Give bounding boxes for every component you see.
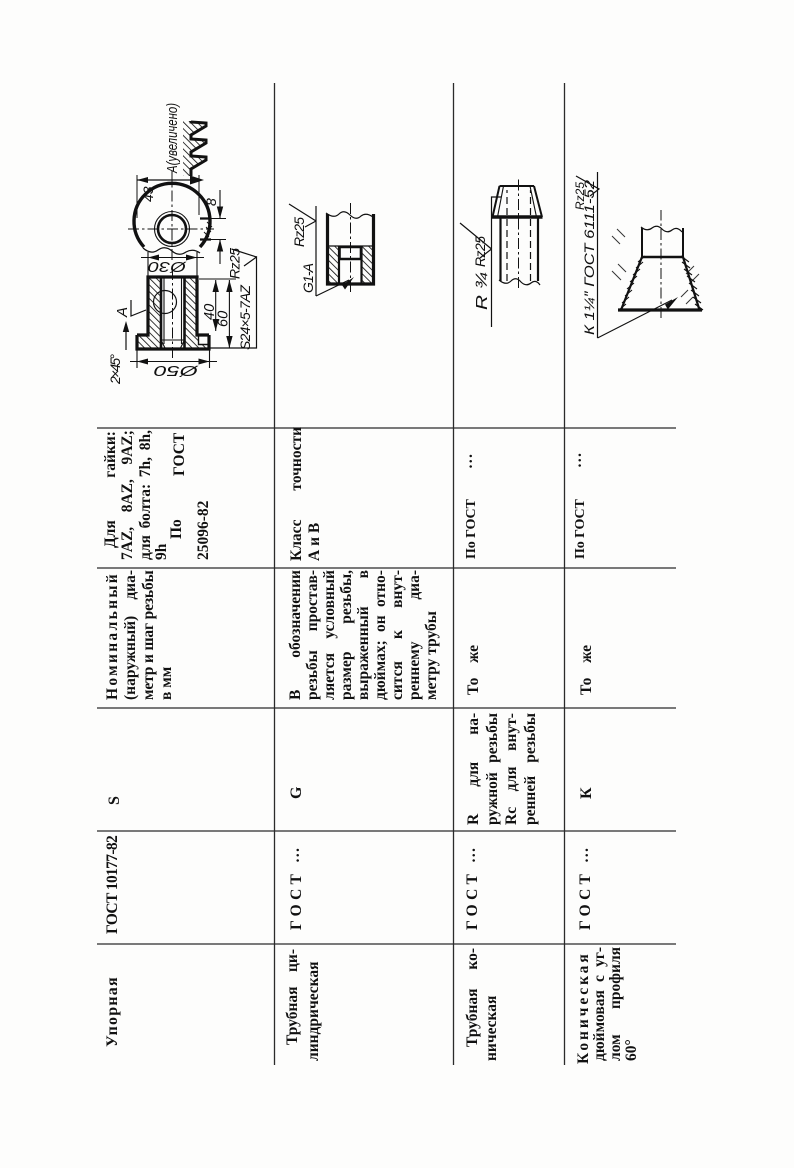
svg-text:8: 8 <box>203 198 219 206</box>
svg-text:ляется условный: ляется условный <box>321 570 338 700</box>
svg-text:размер резьбы,: размер резьбы, <box>338 570 355 700</box>
svg-text:S24×5-7AZ: S24×5-7AZ <box>237 285 253 350</box>
svg-text:для болта: 7h, 8h,: для болта: 7h, 8h, <box>137 430 154 560</box>
svg-text:Класс точности: Класс точности <box>288 427 305 561</box>
svg-text:60°: 60° <box>623 1039 640 1061</box>
svg-text:ренней резьбы: ренней резьбы <box>522 713 539 825</box>
svg-text:Rz25: Rz25 <box>573 182 587 210</box>
svg-text:А: А <box>114 307 131 318</box>
svg-text:В обозначении: В обозначении <box>287 570 304 700</box>
svg-text:Трубная ко-: Трубная ко- <box>464 948 481 1047</box>
svg-text:Трубная ци-: Трубная ци- <box>284 949 301 1045</box>
svg-text:Rc для внут-: Rc для внут- <box>503 713 520 825</box>
svg-text:реннему диа-: реннему диа- <box>406 570 423 700</box>
svg-text:9h: 9h <box>153 543 170 560</box>
svg-text:метру трубы: метру трубы <box>423 611 440 700</box>
svg-text:…: … <box>459 454 476 470</box>
svg-text:2×45°: 2×45° <box>107 354 123 385</box>
svg-text:ГОСТ: ГОСТ <box>464 870 481 930</box>
svg-text:ГОСТ: ГОСТ <box>577 870 594 930</box>
svg-text:ническая: ническая <box>483 996 500 1061</box>
svg-text:К: К <box>578 787 595 799</box>
svg-text:лом профиля: лом профиля <box>607 947 624 1061</box>
svg-text:…: … <box>286 848 303 864</box>
svg-text:R для на-: R для на- <box>465 713 482 825</box>
svg-text:То же: То же <box>578 645 595 695</box>
svg-text:43: 43 <box>140 186 156 202</box>
svg-text:ружной резьбы: ружной резьбы <box>484 713 501 825</box>
svg-text:25096-82: 25096-82 <box>195 500 212 560</box>
svg-text:метр и шаг резьбы: метр и шаг резьбы <box>140 570 157 700</box>
svg-text:резьбы простав-: резьбы простав- <box>304 570 321 700</box>
svg-text:Rz25: Rz25 <box>472 236 488 267</box>
svg-text:Rz25: Rz25 <box>227 248 243 279</box>
svg-text:Ø50: Ø50 <box>153 362 200 379</box>
svg-text:линдрическая: линдрическая <box>305 962 322 1061</box>
svg-text:По ГОСТ: По ГОСТ <box>464 498 479 559</box>
svg-text:ГОСТ: ГОСТ <box>288 870 305 930</box>
svg-text:…: … <box>575 848 592 864</box>
svg-text:То же: То же <box>465 645 482 695</box>
svg-text:сится к внут-: сится к внут- <box>389 570 406 700</box>
svg-text:(наружный) диа-: (наружный) диа- <box>122 570 139 700</box>
svg-text:S: S <box>106 796 123 805</box>
svg-text:…: … <box>568 453 585 469</box>
svg-text:По: По <box>168 519 185 539</box>
svg-text:выраженный в: выраженный в <box>355 570 372 700</box>
svg-text:Ø30: Ø30 <box>147 258 187 275</box>
svg-text:А и В: А и В <box>306 523 323 561</box>
svg-text:Упорная: Упорная <box>104 976 121 1047</box>
svg-text:в мм: в мм <box>158 666 175 700</box>
svg-text:7AZ, 8AZ, 9AZ;: 7AZ, 8AZ, 9AZ; <box>119 430 136 560</box>
svg-text:Rz25: Rz25 <box>291 217 307 247</box>
svg-text:G1-А: G1-А <box>300 263 316 293</box>
svg-text:дюймовая с уг-: дюймовая с уг- <box>591 947 608 1061</box>
svg-text:ГОСТ: ГОСТ <box>171 432 188 476</box>
svg-text:ГОСТ 10177-82: ГОСТ 10177-82 <box>104 835 121 934</box>
svg-text:Номинальный: Номинальный <box>104 572 121 700</box>
svg-text:Для гайки:: Для гайки: <box>102 431 119 548</box>
svg-text:…: … <box>462 848 479 864</box>
svg-text:60: 60 <box>216 311 232 327</box>
svg-text:Коническая: Коническая <box>575 951 592 1064</box>
svg-text:По ГОСТ: По ГОСТ <box>573 498 588 559</box>
svg-text:G: G <box>288 786 305 799</box>
svg-text:дюймах; он отно-: дюймах; он отно- <box>372 570 389 700</box>
svg-text:R ¾: R ¾ <box>474 272 491 310</box>
svg-text:А(увеличено): А(увеличено) <box>164 103 181 174</box>
